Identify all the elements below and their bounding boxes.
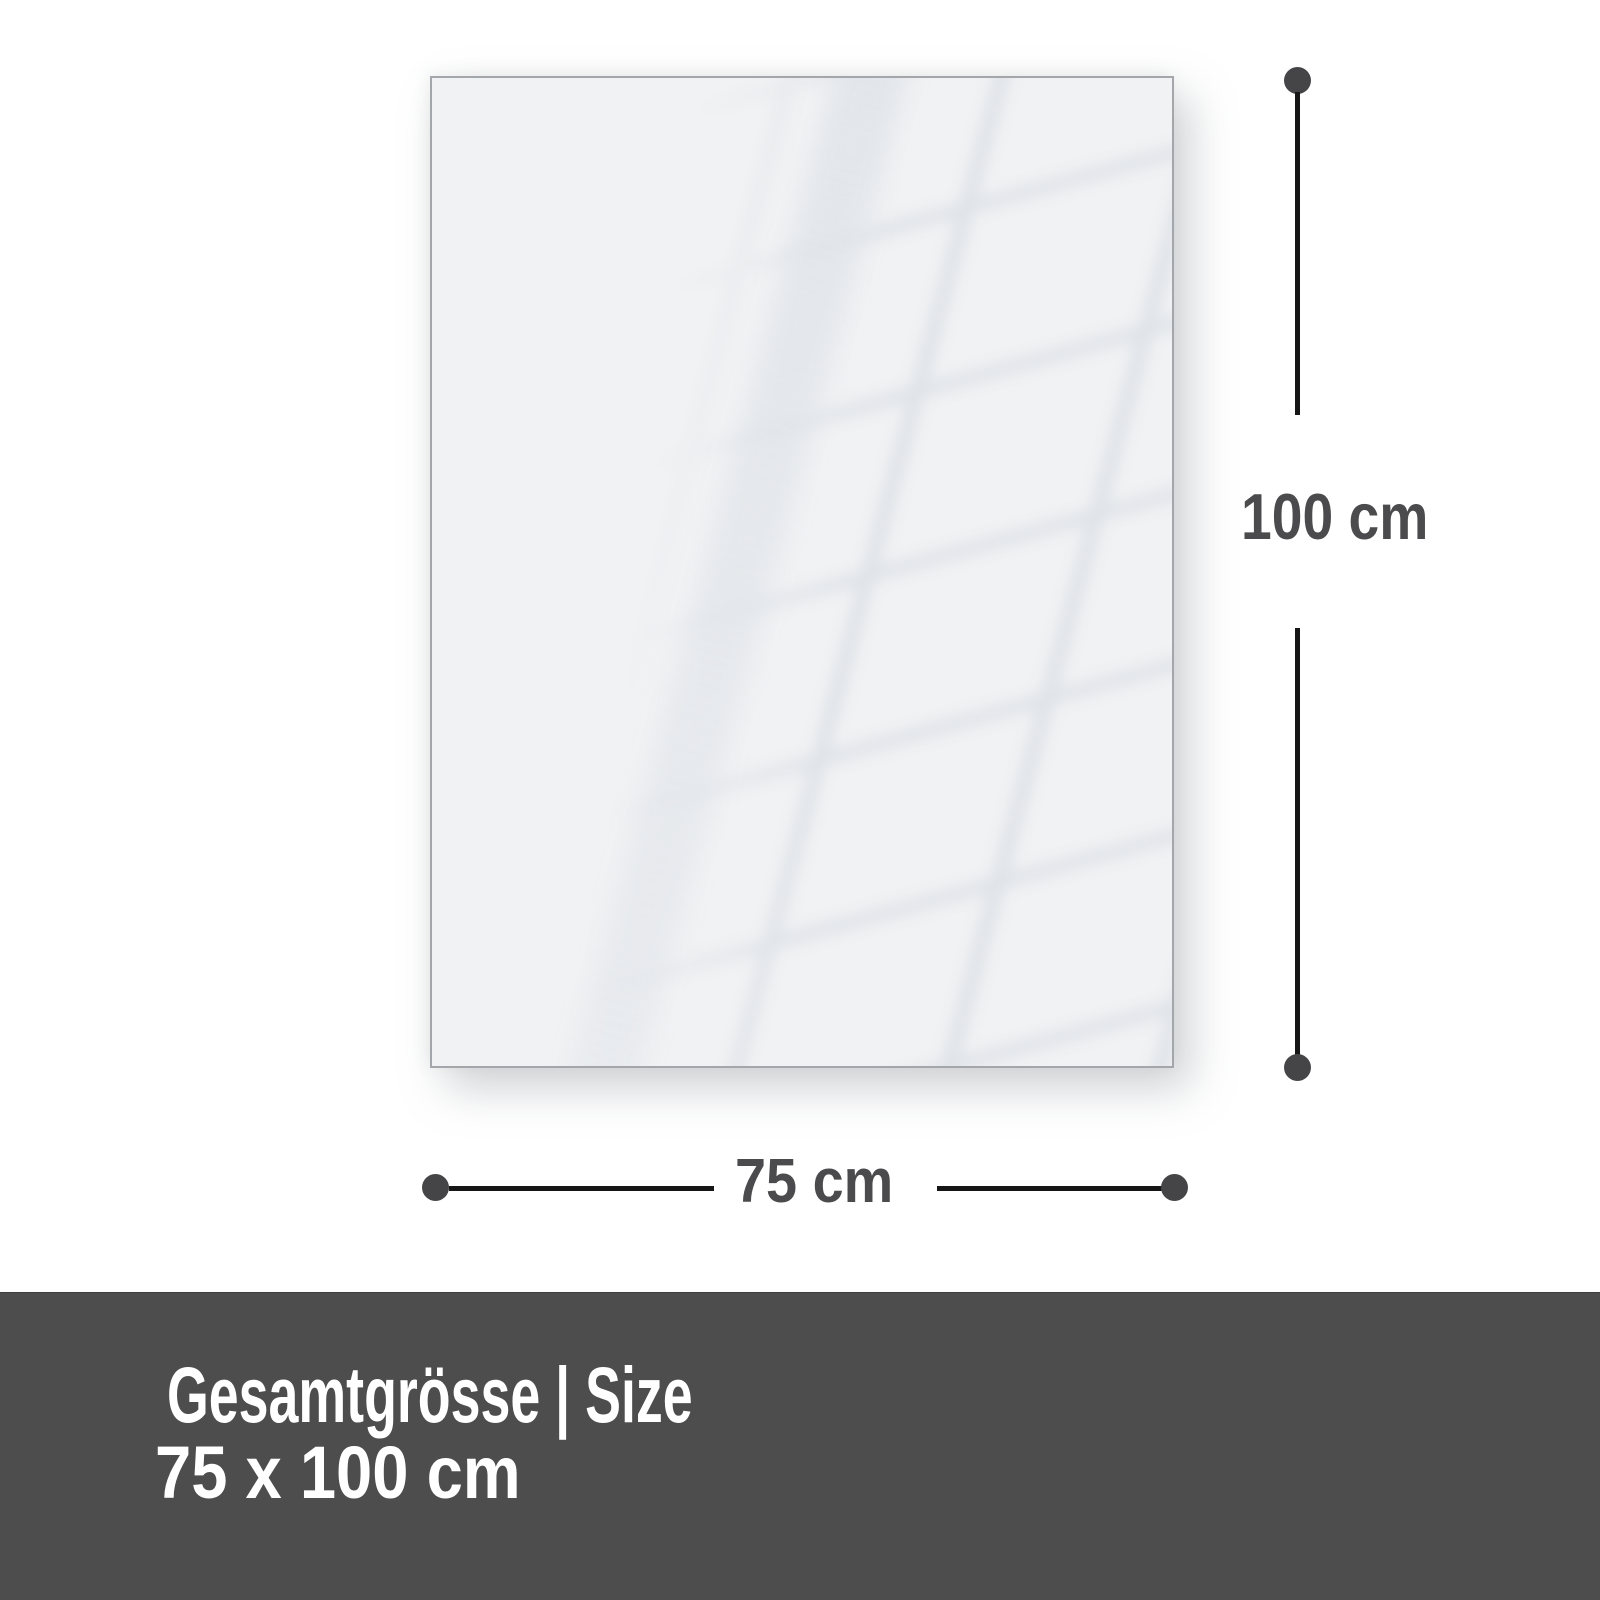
- product-size-diagram: 100 cm 75 cm Gesamtgrösse | Size 75 x 10…: [0, 0, 1600, 1600]
- width-dimension-label: 75 cm: [735, 1151, 893, 1213]
- glass-panel-preview: [430, 76, 1174, 1068]
- height-dimension-label: 100 cm: [1241, 484, 1428, 549]
- width-dimension-left-dot: [422, 1174, 449, 1201]
- width-dimension-line-right: [937, 1186, 1162, 1191]
- height-dimension-line-lower: [1295, 628, 1300, 1055]
- height-dimension-line-upper: [1295, 92, 1300, 415]
- size-info-value: 75 x 100 cm: [155, 1436, 521, 1510]
- height-dimension-bottom-dot: [1284, 1054, 1311, 1081]
- height-dimension-top-dot: [1284, 67, 1311, 94]
- size-info-title: Gesamtgrösse | Size: [167, 1355, 693, 1434]
- size-info-bar: Gesamtgrösse | Size 75 x 100 cm: [0, 1292, 1600, 1600]
- width-dimension-right-dot: [1161, 1174, 1188, 1201]
- width-dimension-line-left: [449, 1186, 714, 1191]
